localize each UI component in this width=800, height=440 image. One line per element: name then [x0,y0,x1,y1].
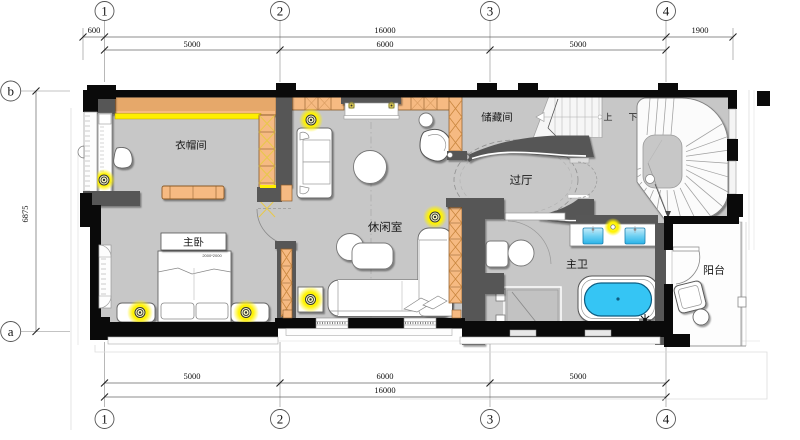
svg-text:3: 3 [487,4,494,19]
svg-text:600: 600 [88,25,101,35]
svg-text:6000: 6000 [377,39,394,49]
svg-text:16000: 16000 [374,385,395,395]
svg-text:a: a [8,324,14,339]
svg-text:b: b [7,84,14,99]
svg-text:6875: 6875 [20,206,30,223]
svg-text:2: 2 [277,4,284,19]
svg-text:4: 4 [663,4,670,19]
svg-text:5000: 5000 [570,371,587,381]
svg-text:16000: 16000 [374,25,395,35]
svg-text:5000: 5000 [184,39,201,49]
svg-text:2000*2000: 2000*2000 [202,253,222,258]
svg-text:1900: 1900 [692,25,709,35]
svg-text:5000: 5000 [184,371,201,381]
svg-text:1: 1 [101,4,108,19]
svg-text:2: 2 [277,412,284,427]
svg-text:3: 3 [487,412,494,427]
svg-text:6000: 6000 [377,371,394,381]
svg-text:4: 4 [663,412,670,427]
svg-text:1: 1 [101,412,108,427]
svg-text:5000: 5000 [570,39,587,49]
